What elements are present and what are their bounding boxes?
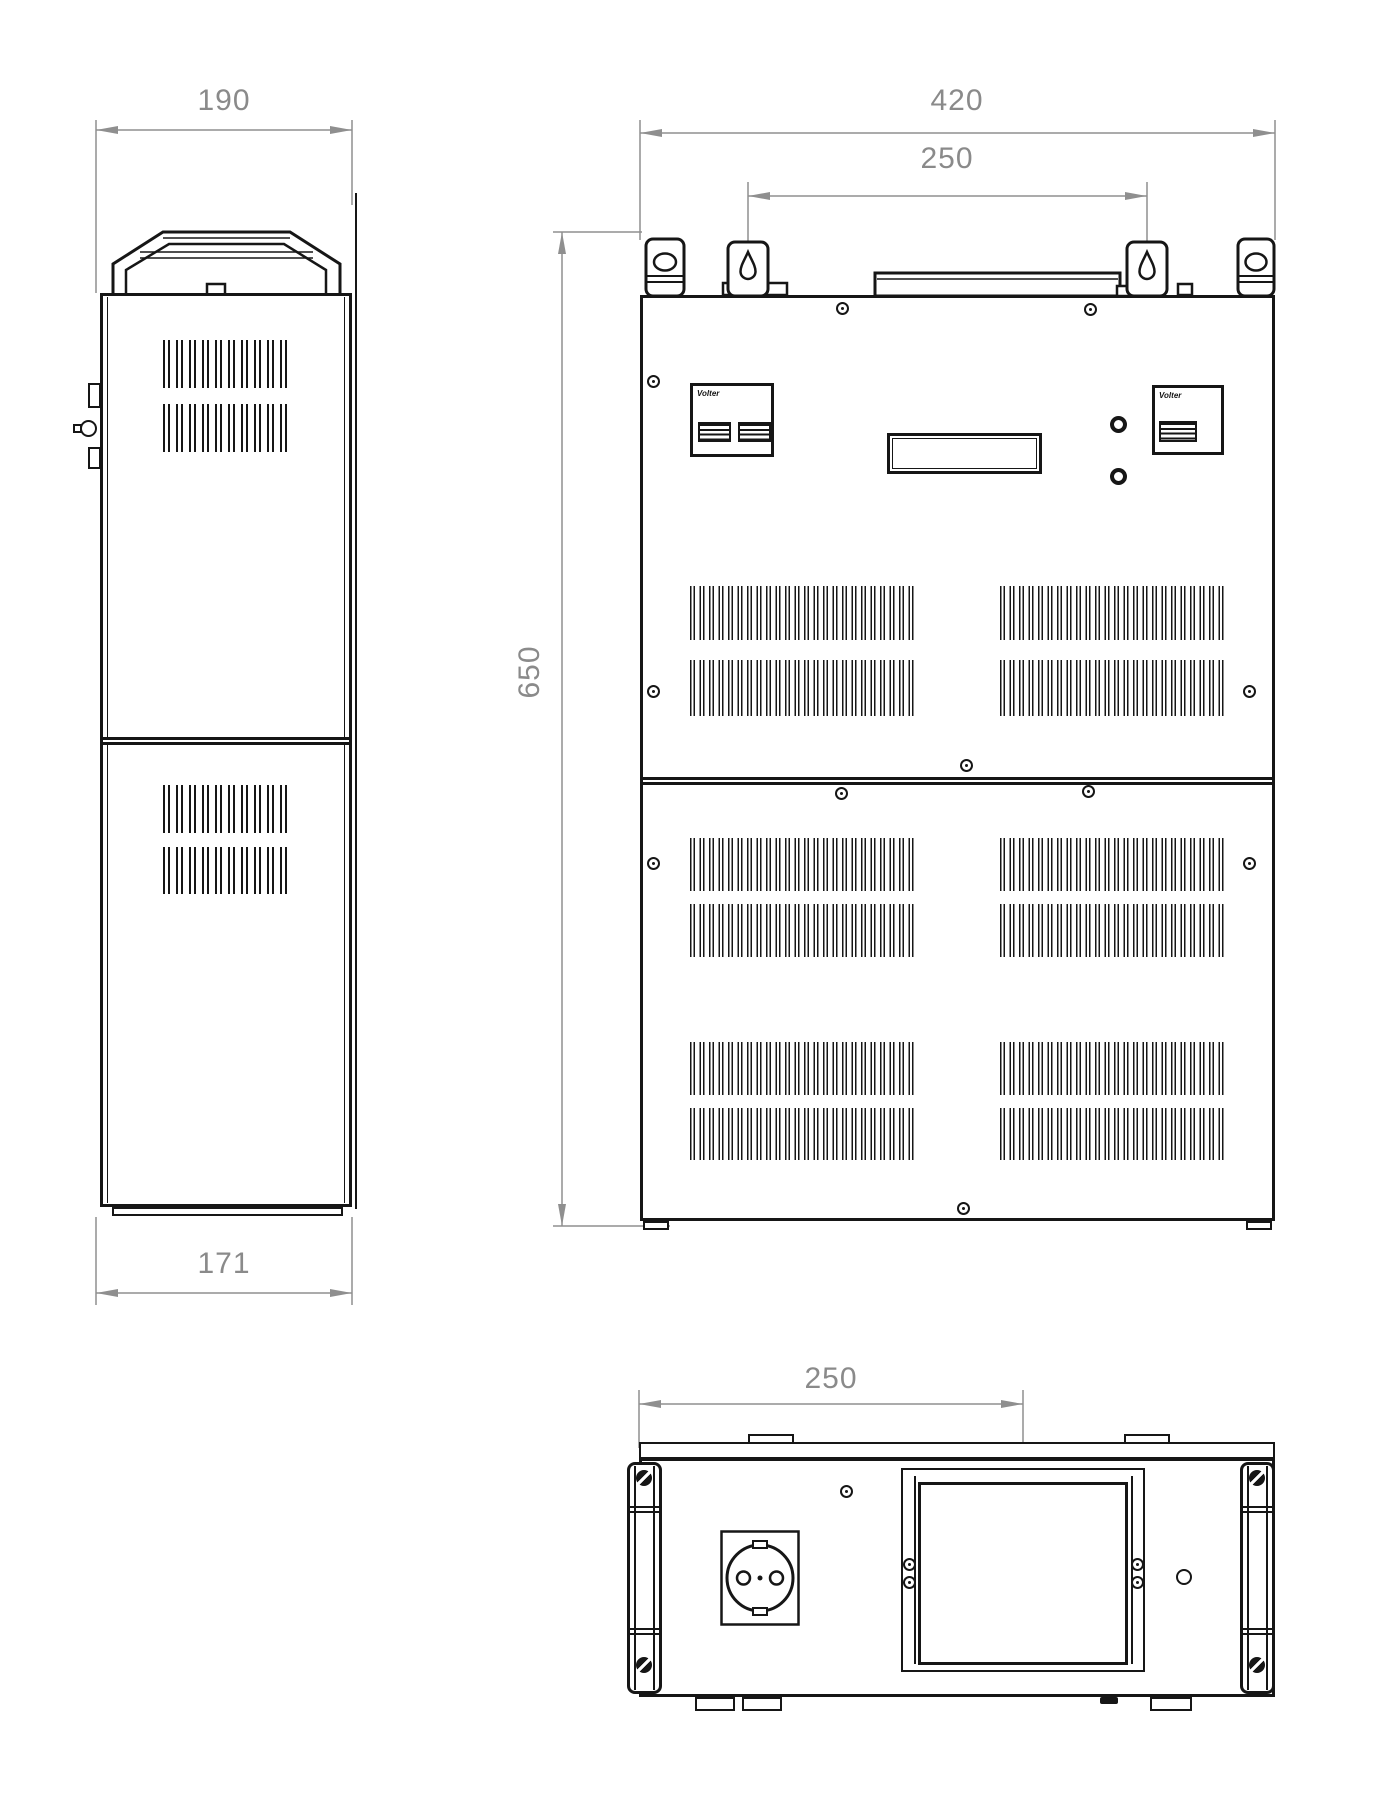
arrowhead-right-icon <box>1253 129 1275 137</box>
socket-pin-hole <box>770 1572 783 1585</box>
brand-logo: Volter <box>697 389 719 398</box>
vent-grille <box>690 838 918 891</box>
control-button[interactable] <box>1110 468 1127 485</box>
screw-hole <box>1084 303 1097 316</box>
rail-joint <box>629 1506 660 1508</box>
screw-hole <box>647 857 660 870</box>
corner-bracket <box>646 239 684 296</box>
rail-screw <box>1249 1657 1265 1673</box>
top-mounting-hardware <box>640 234 1275 296</box>
brand-logo: Volter <box>1159 391 1181 400</box>
rail-joint <box>1242 1506 1273 1508</box>
carry-handle <box>100 224 352 295</box>
screw-hole <box>960 759 973 772</box>
rail-joint <box>629 1511 660 1513</box>
screw-hole <box>1243 685 1256 698</box>
rubber-bumper <box>1100 1697 1118 1704</box>
sheet-edge-line <box>344 297 345 1203</box>
rail-joint <box>1242 1511 1273 1513</box>
screw-hole <box>903 1576 916 1589</box>
corner-bracket <box>1238 239 1274 296</box>
screw-hole <box>1243 857 1256 870</box>
foot <box>1150 1697 1192 1711</box>
rail-screw <box>636 1657 652 1673</box>
screw-hole <box>1082 785 1095 798</box>
rail-screw <box>636 1470 652 1486</box>
rail-joint <box>1242 1633 1273 1635</box>
screw-hole <box>1131 1576 1144 1589</box>
drain-hole <box>1176 1569 1192 1585</box>
top-cover-box <box>875 273 1120 296</box>
foot <box>643 1221 669 1230</box>
screw-hole <box>836 302 849 315</box>
handle-outer <box>113 232 340 295</box>
rail-joint <box>1242 1628 1273 1630</box>
terminal-flange-line <box>914 1476 916 1664</box>
cable-bump <box>1178 284 1192 295</box>
rail-line <box>1247 1466 1249 1690</box>
arrowhead-left-icon <box>748 192 770 200</box>
vent-grille <box>163 404 293 452</box>
dimension-label-420: 420 <box>892 84 1022 118</box>
side-panel-divider <box>103 737 349 745</box>
vent-grille <box>1000 838 1228 891</box>
rail-joint <box>629 1628 660 1630</box>
socket-tab <box>753 1541 767 1548</box>
vent-grille <box>698 422 731 442</box>
vent-grille <box>690 660 918 716</box>
terminal-flange-line <box>1131 1476 1133 1664</box>
display-inner-frame <box>892 438 1037 469</box>
screw-hole <box>840 1485 853 1498</box>
foot <box>695 1697 735 1711</box>
vent-grille <box>163 340 293 388</box>
arrowhead-left-icon <box>96 126 118 134</box>
arrowhead-down-icon <box>558 1204 566 1226</box>
control-module-left: Volter <box>690 383 774 457</box>
socket-center-pin <box>758 1576 763 1581</box>
screw-hole <box>1131 1558 1144 1571</box>
socket-tab <box>753 1608 767 1615</box>
power-socket <box>720 1530 800 1626</box>
arrowhead-right-icon <box>330 126 352 134</box>
foot <box>1246 1221 1272 1230</box>
dimension-label-250-top: 250 <box>882 142 1012 176</box>
arrowhead-left-icon <box>640 129 662 137</box>
socket-pin-hole <box>737 1572 750 1585</box>
vent-grille <box>690 586 918 640</box>
display-window <box>887 433 1042 474</box>
rail-line <box>653 1466 655 1690</box>
side-knob <box>80 420 97 437</box>
vent-grille <box>1000 586 1228 640</box>
front-panel-divider <box>643 777 1272 785</box>
rail-line <box>634 1466 636 1690</box>
screw-hole <box>647 685 660 698</box>
screw-hole <box>903 1558 916 1571</box>
vent-grille <box>163 785 293 833</box>
vent-grille <box>690 904 918 957</box>
control-button[interactable] <box>1110 416 1127 433</box>
control-module-right: Volter <box>1152 385 1224 455</box>
vent-grille <box>690 1042 918 1095</box>
screw-hole <box>647 375 660 388</box>
arrowhead-up-icon <box>558 232 566 254</box>
arrowhead-right-icon <box>330 1289 352 1297</box>
screw-hole <box>957 1202 970 1215</box>
rail-line <box>1266 1466 1268 1690</box>
vent-grille <box>738 422 771 442</box>
vent-grille <box>1000 904 1228 957</box>
arrowhead-right-icon <box>1001 1400 1023 1408</box>
vent-grille <box>1000 1042 1228 1095</box>
vent-grille <box>690 1108 918 1160</box>
bottom-top-strip <box>639 1442 1275 1459</box>
vent-grille <box>163 847 293 894</box>
screw-hole <box>835 787 848 800</box>
wall-plate-edge <box>355 193 357 1209</box>
vent-grille <box>1159 421 1197 442</box>
rail-screw <box>1249 1470 1265 1486</box>
dimension-label-171: 171 <box>159 1247 289 1281</box>
terminal-box-cover <box>918 1482 1128 1665</box>
arrowhead-left-icon <box>639 1400 661 1408</box>
side-knob-stem <box>73 424 82 433</box>
vent-grille <box>1000 660 1228 716</box>
technical-drawing: 190 <box>0 0 1391 1800</box>
rail-joint <box>629 1633 660 1635</box>
arrowhead-left-icon <box>96 1289 118 1297</box>
side-terminal-block <box>88 447 101 469</box>
foot <box>742 1697 782 1711</box>
sheet-edge-line <box>107 297 108 1203</box>
side-terminal-block <box>88 383 101 408</box>
vent-grille <box>1000 1108 1228 1160</box>
arrowhead-right-icon <box>1125 192 1147 200</box>
